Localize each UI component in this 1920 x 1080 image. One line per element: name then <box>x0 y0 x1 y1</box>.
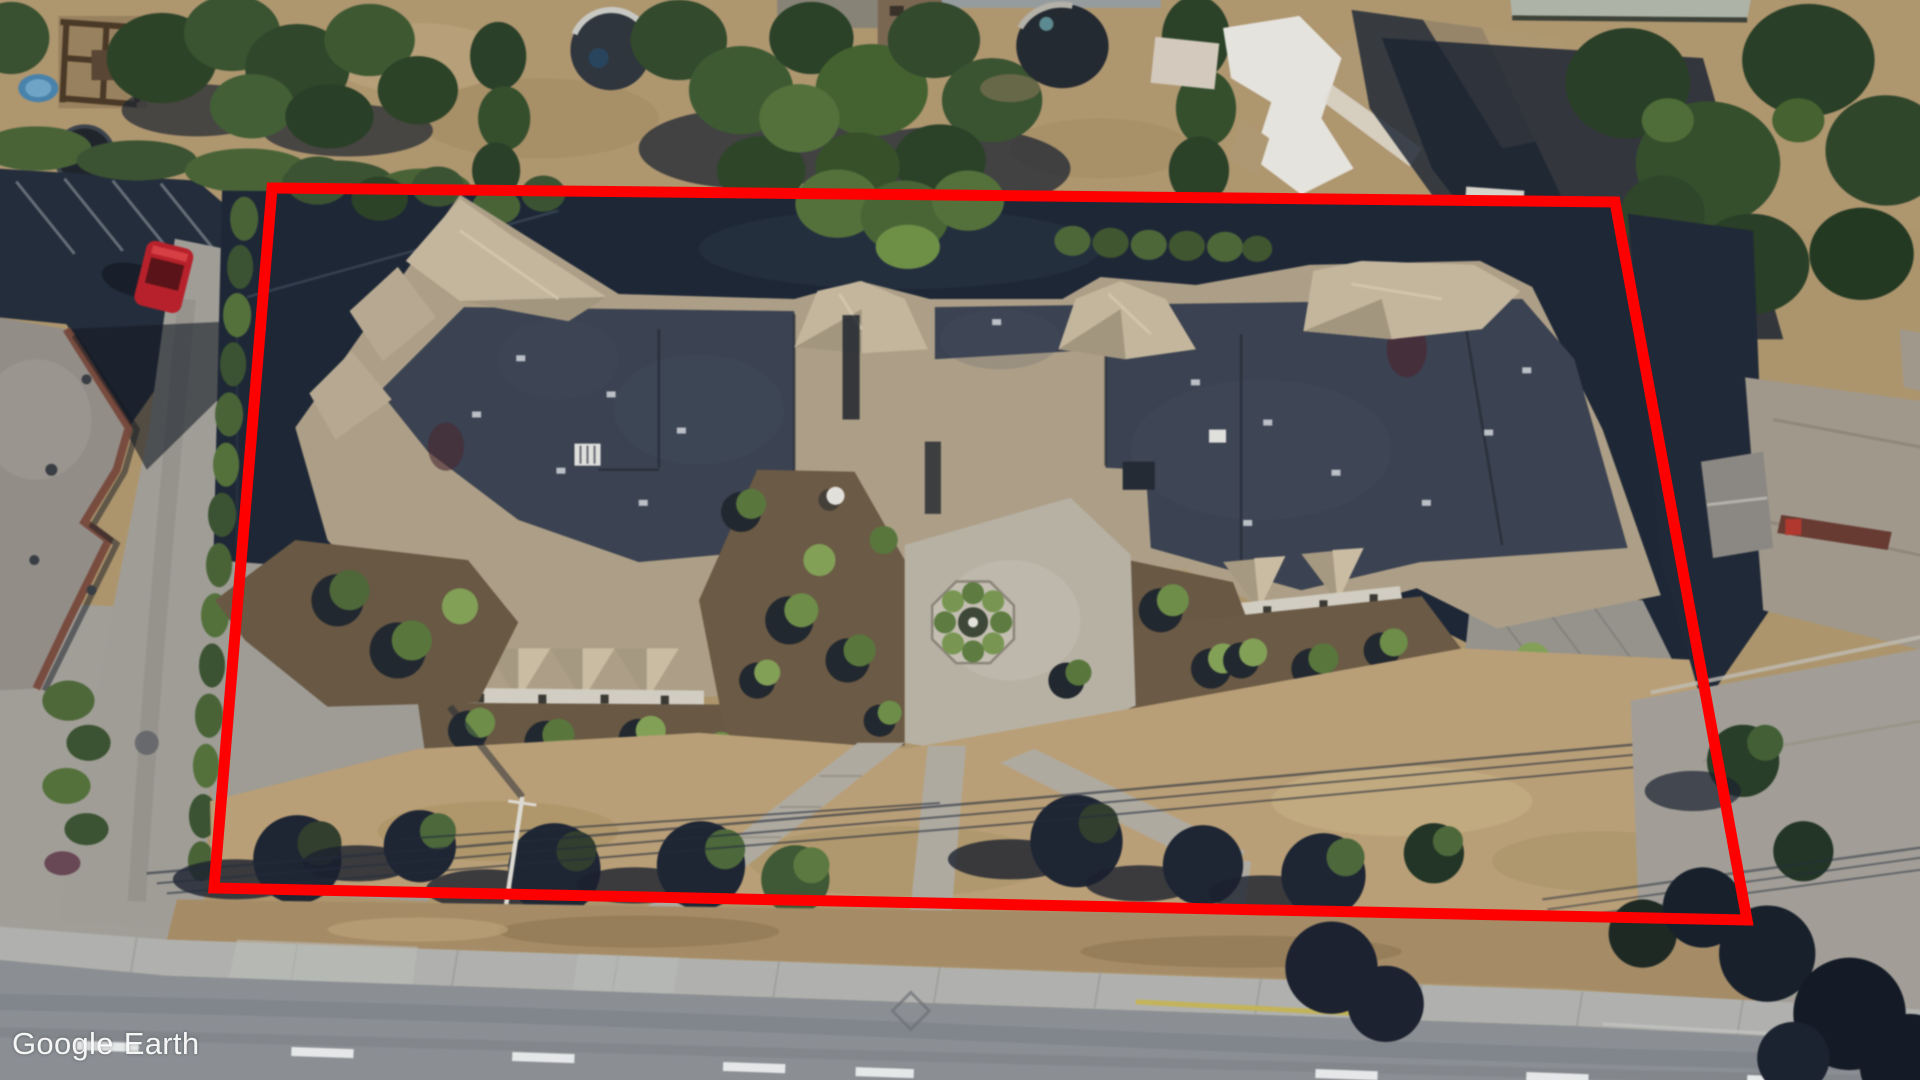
google-earth-watermark: GoogleEarth <box>12 1026 199 1062</box>
watermark-product: Earth <box>124 1026 200 1061</box>
watermark-brand: Google <box>12 1026 114 1061</box>
property-boundary-annotation <box>214 188 1747 920</box>
google-earth-viewport: GoogleEarth <box>0 0 1920 1080</box>
annotation-layer <box>0 0 1920 1080</box>
